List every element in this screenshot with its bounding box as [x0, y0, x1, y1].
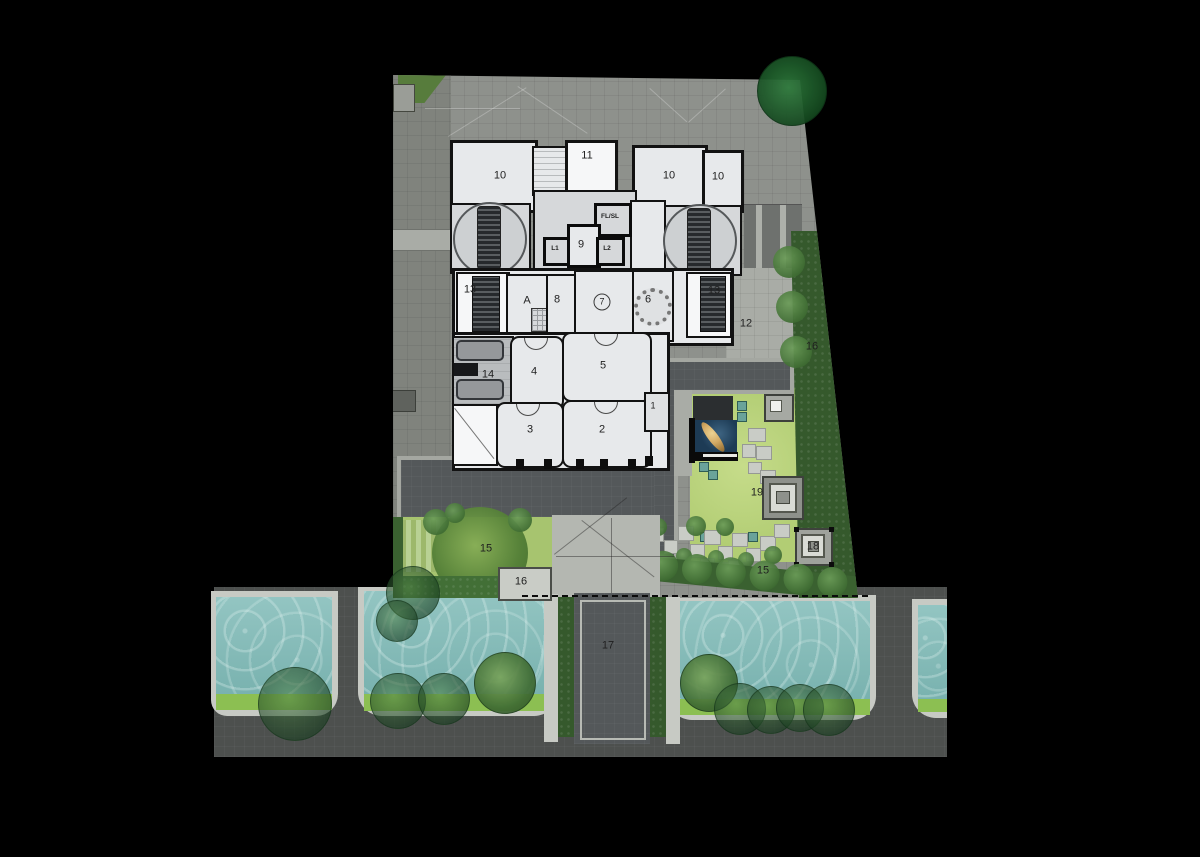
garden-bush [445, 503, 465, 523]
column-tick [516, 459, 524, 469]
tree [418, 673, 470, 725]
drive-17-border [580, 600, 646, 740]
tree-corner [757, 56, 827, 126]
label-room-1: 1 [650, 402, 655, 411]
label-room-5: 5 [600, 361, 606, 372]
corner-kiosk [393, 84, 415, 112]
label-garden-15-west: 15 [480, 544, 492, 555]
car-lift-east [687, 208, 711, 272]
label-room-4: 4 [531, 367, 537, 378]
hedge-bush [773, 246, 805, 278]
label-drive-17: 17 [602, 641, 614, 652]
car-lift-west [477, 206, 501, 270]
label-hedge-16: 16 [806, 342, 818, 353]
stepping-stone [774, 524, 790, 538]
boundary-dashed-line [522, 595, 868, 597]
pond-coping [703, 454, 737, 457]
label-garden-15-east: 15 [757, 566, 769, 577]
label-room-13-east: 13 [708, 286, 720, 297]
label-room-6: 6 [645, 295, 651, 306]
service-box [454, 363, 478, 376]
planter-cube [737, 412, 747, 422]
label-room-9: 9 [578, 240, 584, 251]
planter-cube [737, 401, 747, 411]
west-walkway [393, 229, 451, 251]
pool-4-water [918, 605, 947, 699]
label-lift-1: L1 [551, 246, 559, 253]
tree-leafy [474, 652, 536, 714]
tree [803, 684, 855, 736]
pool-4-green-strip [918, 699, 947, 712]
drive-hedge-west [558, 597, 574, 737]
label-room-11: 11 [581, 151, 592, 162]
roofline [425, 108, 520, 109]
label-parking-14: 14 [482, 370, 494, 381]
driveway-band-north [654, 362, 790, 390]
room-1 [644, 392, 670, 432]
label-gatehouse-16: 16 [515, 577, 527, 588]
label-lift-2: L2 [603, 246, 611, 253]
lawn-pad [742, 444, 756, 458]
drive-hedge-east [650, 597, 666, 737]
column-tick [645, 456, 653, 466]
hedge-bush [776, 291, 808, 323]
label-pavilion-18: 18 [807, 542, 819, 553]
pavilion-18-post [794, 527, 799, 532]
label-room-7: 7 [594, 294, 611, 311]
label-pavilion-19: 19 [751, 488, 763, 499]
garden-bush [508, 508, 532, 532]
column-tick [576, 459, 584, 469]
utility-pad [392, 390, 416, 412]
label-terrace-12: 12 [740, 319, 752, 330]
car [456, 340, 504, 361]
stepping-stone [732, 533, 748, 547]
label-room-3: 3 [527, 425, 533, 436]
label-room-13-west: 13 [464, 285, 476, 296]
planter-cube [748, 532, 758, 542]
column-tick [544, 459, 552, 469]
stair-north [532, 146, 569, 196]
pavilion-18-post [829, 527, 834, 532]
label-room-10-east: 10 [712, 172, 724, 183]
label-room-2: 2 [599, 425, 605, 436]
label-room-8: 8 [554, 295, 560, 306]
site-plan-canvas: 10 11 10 10 FL/SL L1 9 L2 13 A 8 7 6 13 … [0, 0, 1200, 857]
pond-deck [693, 396, 733, 422]
car [456, 379, 504, 400]
tree [258, 667, 332, 741]
pavilion-19-core [776, 491, 790, 504]
lawn-pad [756, 446, 772, 460]
label-room-10-mid: 10 [663, 171, 675, 182]
label-room-10-west: 10 [494, 171, 506, 182]
garden-pavilion-north-inner [770, 400, 782, 412]
drive-walk-west [544, 594, 558, 742]
planter-cube [708, 470, 718, 480]
drive-centerline [611, 518, 612, 596]
column-tick [628, 459, 636, 469]
tree [376, 600, 418, 642]
car-lift-shaft-west [472, 276, 500, 332]
column-tick [600, 459, 608, 469]
garden-bush [716, 518, 734, 536]
spiral-feature [634, 288, 672, 326]
lawn-pad [748, 428, 766, 442]
label-fire-lift: FL/SL [601, 214, 619, 221]
core-east-rooms [630, 200, 666, 274]
garden-bush [686, 516, 706, 536]
drive-walk-east [666, 597, 680, 744]
label-room-a: A [523, 296, 530, 307]
survey-line [556, 556, 674, 557]
